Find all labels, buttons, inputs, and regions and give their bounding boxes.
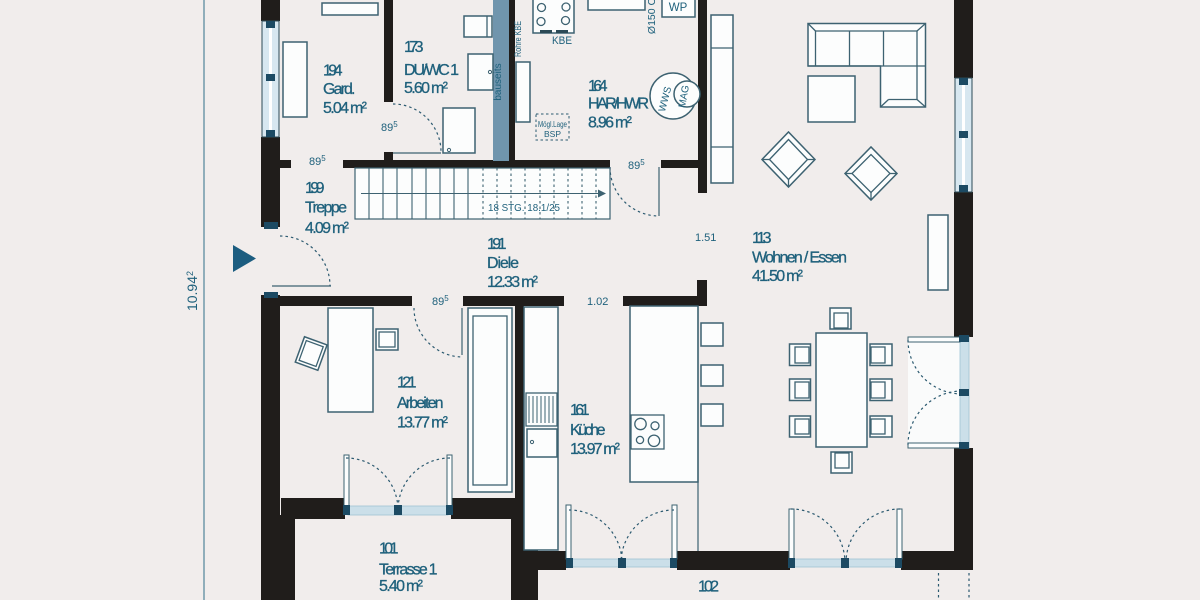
svg-text:1.51: 1.51 [695,232,716,244]
svg-text:DU/WC 1: DU/WC 1 [404,62,459,79]
svg-text:Arbeiten: Arbeiten [397,395,444,412]
svg-text:KBE: KBE [552,35,572,47]
svg-text:18 STG. 18.1/25: 18 STG. 18.1/25 [488,202,560,214]
svg-text:102: 102 [698,579,719,596]
svg-text:121: 121 [397,375,417,392]
svg-text:Küche: Küche [570,422,606,439]
svg-text:5.40 m²: 5.40 m² [379,578,424,595]
svg-text:Diele: Diele [487,255,519,272]
svg-text:13.77 m²: 13.77 m² [397,415,449,432]
svg-text:164: 164 [588,78,608,95]
svg-text:13.97 m²: 13.97 m² [570,441,621,458]
svg-text:Ø150 C: Ø150 C [646,0,658,34]
svg-text:Wohnen / Essen: Wohnen / Essen [752,250,847,267]
svg-text:bauseits: bauseits [493,63,504,100]
svg-text:Terrasse 1: Terrasse 1 [379,562,438,579]
svg-text:4.09 m²: 4.09 m² [305,220,350,237]
svg-text:8.96 m²: 8.96 m² [588,115,633,132]
svg-text:194: 194 [323,63,343,80]
svg-text:Treppe: Treppe [305,200,347,217]
svg-text:41.50 m²: 41.50 m² [752,268,804,285]
svg-text:BSP: BSP [544,129,561,139]
svg-text:5.04 m²: 5.04 m² [323,100,368,117]
svg-text:173: 173 [404,39,424,56]
svg-text:101: 101 [379,541,399,558]
svg-text:161: 161 [570,402,590,419]
svg-text:WP: WP [669,2,688,14]
svg-text:HAR/HWR: HAR/HWR [588,96,649,113]
svg-text:12.33 m²: 12.33 m² [487,274,539,291]
svg-text:Mögl.Lage: Mögl.Lage [538,119,567,129]
svg-text:5.60 m²: 5.60 m² [404,80,449,97]
svg-text:10.942: 10.942 [184,271,200,311]
svg-text:Rohre KBE: Rohre KBE [513,21,524,57]
svg-text:199: 199 [305,180,325,197]
svg-text:1.02: 1.02 [587,296,608,308]
svg-text:113: 113 [752,230,772,247]
svg-text:191: 191 [487,236,507,253]
svg-text:Gard.: Gard. [323,81,356,98]
